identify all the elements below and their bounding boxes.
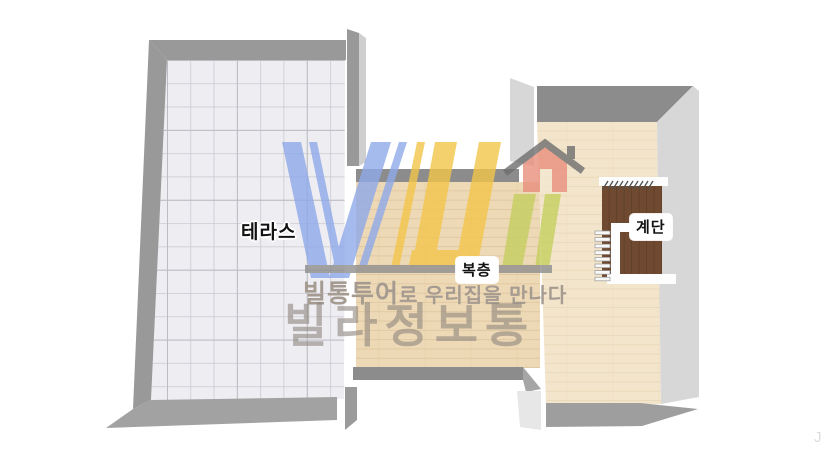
stair-rail-inner — [611, 223, 620, 282]
loft-wall-bottom — [353, 367, 523, 380]
floorplan-drawing — [0, 0, 840, 472]
terrace-wall-top — [149, 40, 346, 60]
floorplan-canvas: 테라스 복층 계단 빌통투어로 우리집을 만나다 빌라정보통 J — [0, 0, 840, 472]
stair-room-wall-bottom — [546, 403, 698, 427]
room-label-loft: 복층 — [456, 257, 498, 283]
logo-house-door — [540, 169, 552, 192]
loft-wall-stub-left — [345, 387, 357, 430]
stair-landing-bottom — [607, 274, 676, 284]
terrace-wall-right-upper — [347, 29, 359, 166]
stray-watermark-artifact: J — [814, 429, 822, 446]
room-label-stairs: 계단 — [630, 214, 672, 240]
logo-underline-bar — [305, 265, 552, 273]
stair-room-wall-right — [657, 86, 699, 404]
terrace-wall-right-upper-face — [359, 33, 366, 166]
room-label-terrace: 테라스 — [241, 217, 296, 244]
watermark-brand: 빌라정보통 — [284, 299, 535, 353]
loft-wall-bottom-corner — [523, 367, 541, 392]
loft-wall-stub-right — [517, 391, 541, 430]
stair-landing-top — [599, 177, 668, 186]
